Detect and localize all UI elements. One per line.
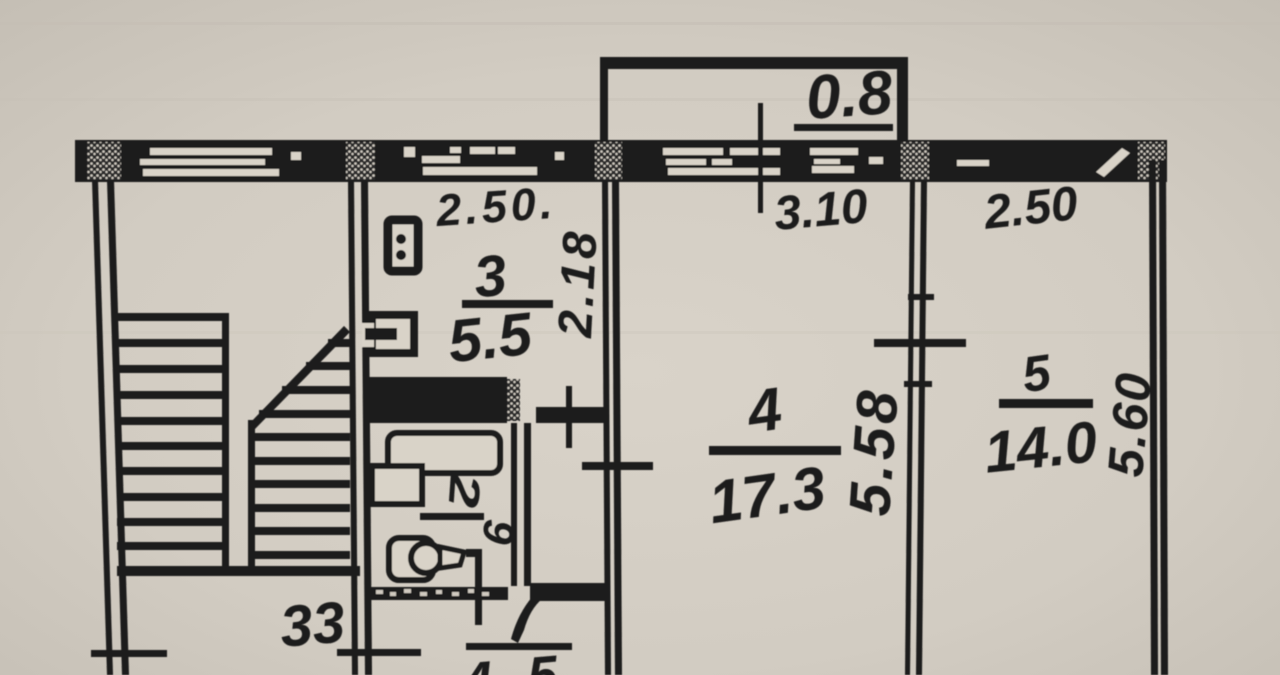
svg-text:2: 2 [439,470,490,509]
svg-text:2.18: 2.18 [549,227,608,340]
svg-text:5.5: 5.5 [445,300,537,376]
svg-text:2.50: 2.50 [981,177,1081,240]
svg-text:2.50.: 2.50. [433,177,557,236]
svg-text:0.8: 0.8 [804,58,895,133]
svg-text:3.10: 3.10 [772,180,870,241]
svg-text:5.58: 5.58 [837,385,911,518]
svg-text:33: 33 [278,589,348,659]
svg-text:14.0: 14.0 [981,409,1100,485]
